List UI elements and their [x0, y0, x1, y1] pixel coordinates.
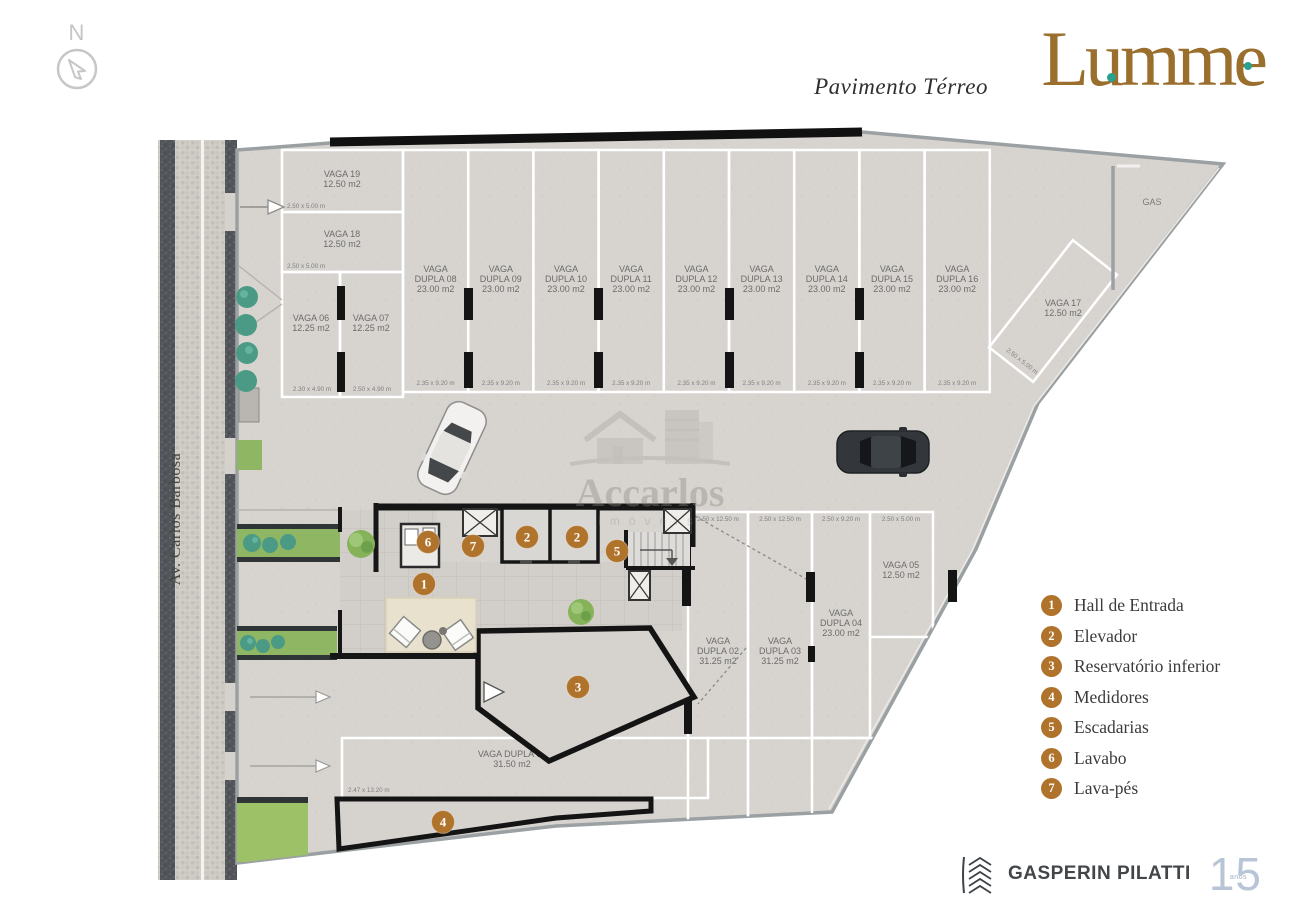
space-label: VAGA 0612.25 m2: [292, 313, 330, 333]
tree: [347, 530, 375, 558]
legend-item-6: 6Lavabo: [1041, 748, 1220, 769]
brand-accent-dot: [1244, 62, 1252, 70]
car-dark: [837, 427, 929, 477]
builder-logo-icon: [960, 851, 996, 897]
legend-item-3: 3Reservatório inferior: [1041, 656, 1220, 677]
space-dimensions: 2.35 x 9.20 m: [677, 380, 715, 387]
coffee-table: [423, 631, 441, 649]
plan-badge-6: 6: [417, 531, 440, 554]
svg-text:6: 6: [425, 535, 432, 550]
legend-badge: 6: [1041, 748, 1062, 769]
plan-badge-4: 4: [432, 811, 455, 834]
legend-label: Medidores: [1074, 687, 1149, 708]
space-dimensions: 2.35 x 9.20 m: [743, 380, 781, 387]
svg-text:3: 3: [575, 680, 582, 695]
space-dimensions: 2.30 x 4.90 m: [293, 386, 331, 393]
footer: GASPERIN PILATTI 15 anos: [960, 851, 1262, 897]
company-name: GASPERIN PILATTI: [1008, 863, 1191, 885]
legend-badge: 7: [1041, 778, 1062, 799]
legend-label: Reservatório inferior: [1074, 656, 1220, 677]
floor-label: Pavimento Térreo: [814, 74, 988, 100]
plan-badge-1: 1: [413, 573, 436, 596]
legend-item-4: 4Medidores: [1041, 687, 1220, 708]
space-dimensions: 2.35 x 9.20 m: [482, 380, 520, 387]
decor: [439, 627, 447, 635]
space-dimensions: 2.35 x 9.20 m: [417, 380, 455, 387]
legend-item-1: 1Hall de Entrada: [1041, 595, 1220, 616]
space-label: VAGA 1912.50 m2: [323, 169, 361, 189]
brand-logo: Lumme: [1041, 20, 1264, 98]
compass-north-label: N: [52, 20, 102, 46]
svg-text:4: 4: [440, 815, 447, 830]
space-dimensions: 2.35 x 9.20 m: [808, 380, 846, 387]
planter-box: [239, 388, 259, 422]
legend-badge: 2: [1041, 626, 1062, 647]
legend-badge: 5: [1041, 717, 1062, 738]
street-name: Av. Carlos Barbosa: [167, 409, 185, 629]
legend-label: Lava-pés: [1074, 778, 1138, 799]
legend-item-5: 5Escadarias: [1041, 717, 1220, 738]
plan-badge-5: 5: [606, 540, 629, 563]
plan-badge-2: 2: [516, 526, 539, 549]
legend-label: Escadarias: [1074, 717, 1149, 738]
space-label: VAGA 0712.25 m2: [352, 313, 390, 333]
space-label: VAGA 1712.50 m2: [1044, 298, 1082, 318]
legend-label: Lavabo: [1074, 748, 1126, 769]
space-dimensions: 2.35 x 9.20 m: [873, 380, 911, 387]
space-label: VAGA 1812.50 m2: [323, 229, 361, 249]
compass: N: [52, 20, 102, 97]
plan-badge-7: 7: [462, 535, 485, 558]
plan-badge-2: 2: [566, 526, 589, 549]
legend: 1Hall de Entrada2Elevador3Reservatório i…: [1041, 595, 1220, 799]
space-dimensions: 2.50 x 5.00 m: [882, 516, 920, 523]
legend-badge: 4: [1041, 687, 1062, 708]
svg-text:7: 7: [470, 539, 477, 554]
legend-badge: 1: [1041, 595, 1062, 616]
lobby-furniture: [386, 598, 476, 652]
space-dimensions: 2.50 x 12.50 m: [759, 516, 801, 523]
svg-text:2: 2: [524, 530, 531, 545]
compass-icon: [54, 46, 100, 92]
space-dimensions: 2.47 x 13.20 m: [348, 787, 390, 794]
space-dimensions: 2.50 x 5.00 m: [287, 263, 325, 270]
tree: [568, 599, 594, 625]
space-label: VAGA 0512.50 m2: [882, 560, 920, 580]
space-dimensions: 2.35 x 9.20 m: [547, 380, 585, 387]
space-dimensions: 2.50 x 5.00 m: [287, 203, 325, 210]
legend-item-7: 7Lava-pés: [1041, 778, 1220, 799]
legend-item-2: 2Elevador: [1041, 626, 1220, 647]
gas-label: GAS: [1142, 197, 1161, 207]
brand-text: Lumme: [1041, 15, 1264, 102]
hedge-small: [237, 440, 262, 470]
plan-badge-3: 3: [567, 676, 590, 699]
space-dimensions: 2.35 x 9.20 m: [612, 380, 650, 387]
stairs: [626, 530, 695, 568]
svg-text:2: 2: [574, 530, 581, 545]
space-dimensions: 2.50 x 9.20 m: [822, 516, 860, 523]
svg-text:1: 1: [421, 577, 428, 592]
anniversary-mark: 15 anos: [1203, 851, 1262, 897]
legend-label: Elevador: [1074, 626, 1137, 647]
page: { "header": { "floor_label": "Pavimento …: [0, 0, 1300, 919]
years-label: anos: [1230, 874, 1247, 881]
legend-badge: 3: [1041, 656, 1062, 677]
space-dimensions: 2.35 x 9.20 m: [938, 380, 976, 387]
space-dimensions: 2.50 x 12.50 m: [697, 516, 739, 523]
grass-patch: [237, 797, 308, 862]
space-dimensions: 2.50 x 4.90 m: [353, 386, 391, 393]
svg-text:5: 5: [614, 544, 621, 559]
legend-label: Hall de Entrada: [1074, 595, 1184, 616]
